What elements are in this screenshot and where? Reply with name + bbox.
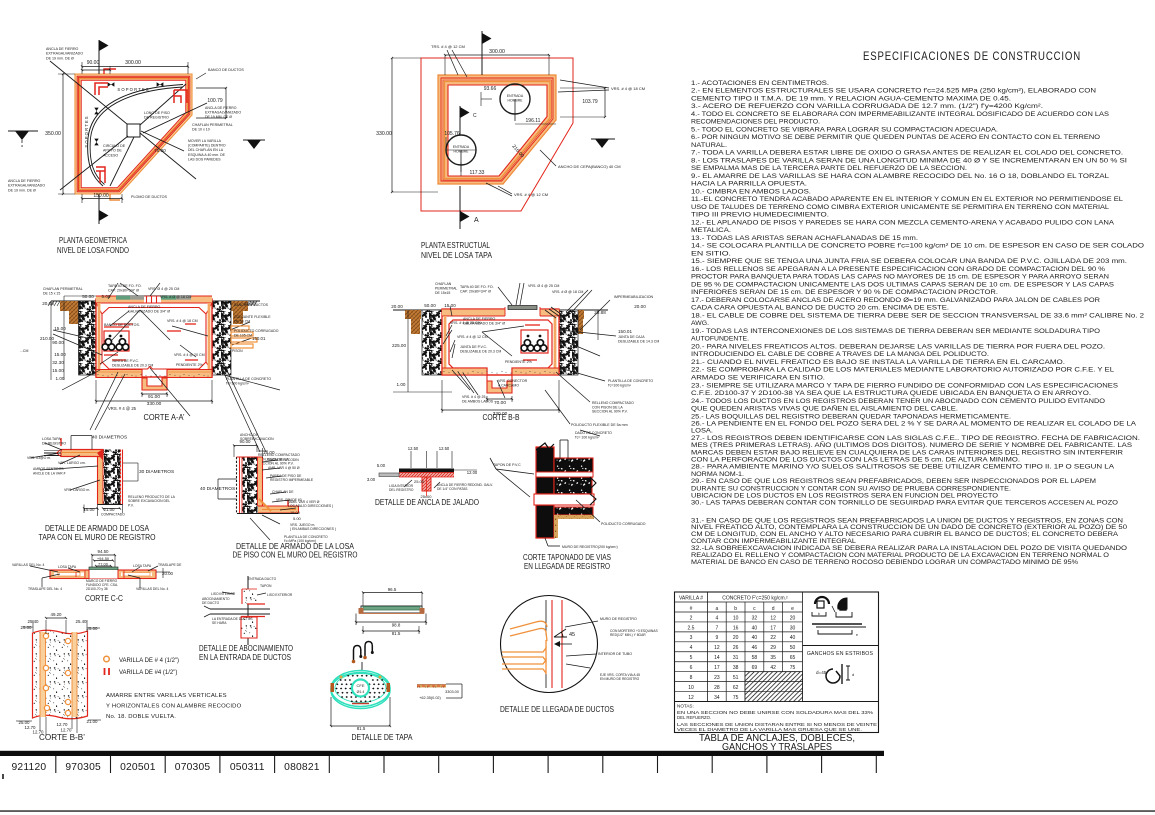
svg-text:(COMPARTE) DENTRO: (COMPARTE) DENTRO: [188, 144, 226, 148]
svg-text:IMPERMEABILIZACION: IMPERMEABILIZACION: [614, 295, 654, 299]
svg-text:DE 50 CM: DE 50 CM: [234, 319, 250, 323]
svg-text:RECOMENDACIONES DEL PRODUCTO.: RECOMENDACIONES DEL PRODUCTO.: [691, 119, 820, 126]
svg-text:DE 15 x 15: DE 15 x 15: [43, 291, 60, 295]
svg-text:20: 20: [733, 635, 739, 641]
svg-text:15.00: 15.00: [444, 303, 456, 308]
svg-text:+94.50: +94.50: [97, 556, 110, 561]
svg-text:15.00: 15.00: [84, 507, 96, 512]
svg-text:SECCION AL 90% P.V.: SECCION AL 90% P.V.: [592, 410, 628, 414]
svg-text:16: 16: [733, 625, 739, 631]
svg-text:5.00: 5.00: [293, 516, 302, 521]
svg-text:93.66: 93.66: [484, 86, 497, 92]
svg-text:LOSA.: LOSA.: [691, 428, 713, 435]
svg-text:LAS DOS PAREDES: LAS DOS PAREDES: [188, 157, 221, 161]
svg-text:APOYO DE: APOYO DE: [103, 149, 122, 153]
svg-text:PROCTOR PARA BANQUETA PARA TOD: PROCTOR PARA BANQUETA PARA TODAS LAS CAP…: [691, 274, 1109, 281]
svg-text:17: 17: [770, 625, 776, 631]
svg-text:DEL REGISTRO: DEL REGISTRO: [389, 488, 414, 492]
svg-text:26: 26: [733, 645, 739, 651]
svg-text:CHAFLAN PERIMETRAL: CHAFLAN PERIMETRAL: [192, 123, 233, 127]
svg-text:32.30: 32.30: [52, 360, 64, 365]
svg-text:SE HARA: SE HARA: [212, 621, 227, 625]
svg-text:58: 58: [752, 655, 758, 661]
svg-text:DE 105 CM: DE 105 CM: [234, 333, 252, 337]
svg-text:#: #: [690, 606, 693, 612]
svg-text:VARILLAS DEL No. 4: VARILLAS DEL No. 4: [12, 563, 45, 567]
svg-text:22.- SE COMPROBARA LA CALIDAD: 22.- SE COMPROBARA LA CALIDAD DE LOS MAT…: [691, 367, 1114, 374]
svg-text:CONTAR CON IMPERMEABILIZANTE I: CONTAR CON IMPERMEABILIZANTE INTEGRAL: [691, 538, 856, 545]
svg-text:25.00: 25.00: [414, 479, 425, 484]
svg-text:f'c=100 kg/cm²: f'c=100 kg/cm²: [226, 381, 250, 385]
svg-text:40 DIAMETROS: 40 DIAMETROS: [92, 435, 127, 441]
svg-text:27.- LOS REGISTROS DEBEN IDENT: 27.- LOS REGISTROS DEBEN IDENTIFICARSE C…: [691, 435, 1140, 442]
svg-text:VARILLA #: VARILLA #: [679, 596, 703, 602]
svg-text:20.- PARA NIVELES FREATICOS AL: 20.- PARA NIVELES FREATICOS ALTOS. DEBER…: [691, 343, 1105, 350]
svg-text:PENDIENTE 2%: PENDIENTE 2%: [176, 363, 204, 367]
svg-text:12.50: 12.50: [439, 446, 450, 451]
svg-text:AUTOFUNDENTE.: AUTOFUNDENTE.: [691, 336, 749, 343]
svg-text:PERIMETRAL: PERIMETRAL: [435, 286, 457, 290]
svg-text:350.00: 350.00: [45, 131, 61, 137]
svg-text:17.- DEBERAN COLOCARSE ANCLAS: 17.- DEBERAN COLOCARSE ANCLAS DE ACERO R…: [691, 297, 1100, 304]
svg-text:8: 8: [690, 675, 693, 681]
svg-text:LOSA TAPA: LOSA TAPA: [133, 564, 152, 568]
svg-text:DE PISO CON EL MURO DEL REGIST: DE PISO CON EL MURO DEL REGISTRO: [233, 551, 358, 560]
svg-text:1.00: 1.00: [56, 376, 65, 381]
svg-text:300.00: 300.00: [489, 49, 505, 55]
svg-text:MURO DE REGISTRO: MURO DE REGISTRO: [562, 545, 598, 549]
svg-text:921120: 921120: [12, 762, 47, 773]
svg-text:1.- ACOTACIONES EN CENTIMETROS: 1.- ACOTACIONES EN CENTIMETROS.: [691, 80, 829, 87]
svg-text:7: 7: [715, 625, 718, 631]
svg-text:CHAFLAN: CHAFLAN: [435, 282, 452, 286]
svg-text:81.5: 81.5: [357, 726, 366, 731]
svg-text:15.00: 15.00: [54, 326, 66, 331]
svg-text:TRASLAPE DE: TRASLAPE DE: [158, 563, 182, 567]
svg-text:QUE QUEDEN ARISTAS VIVAS QUE D: QUE QUEDEN ARISTAS VIVAS QUE DAÑEN EL AI…: [691, 404, 958, 413]
svg-text:14.- SE COLOCARA PLANTILLA DE: 14.- SE COLOCARA PLANTILLA DE CONCRETO P…: [691, 243, 1144, 250]
svg-text:24.- TODOS LOS DUCTOS EN LOS R: 24.- TODOS LOS DUCTOS EN LOS REGISTROS D…: [691, 398, 1105, 405]
svg-text:75: 75: [733, 695, 739, 701]
svg-text:VRS. # 4 @ 18 CM: VRS. # 4 @ 18 CM: [611, 86, 645, 91]
svg-text:INFERIORES SERAN DE 15 cm. DE: INFERIORES SERAN DE 15 cm. DE ESPESOR Y …: [691, 289, 998, 296]
svg-text:51: 51: [733, 675, 739, 681]
svg-text:VARILLAS DEL No. 4: VARILLAS DEL No. 4: [136, 587, 169, 591]
svg-text:94.50: 94.50: [98, 549, 110, 554]
svg-text:EN SITIO.: EN SITIO.: [691, 250, 731, 257]
svg-text:+62.35(0.02): +62.35(0.02): [419, 696, 441, 700]
svg-text:050311: 050311: [230, 762, 265, 773]
svg-text:NIVEL DE LOSA TAPA: NIVEL DE LOSA TAPA: [421, 251, 493, 260]
svg-text:ESQUINA A 40 mm. DE: ESQUINA A 40 mm. DE: [188, 153, 226, 157]
svg-text:VRS. Ø 4 @ 25 CM: VRS. Ø 4 @ 25 CM: [528, 284, 559, 288]
svg-text:BANCO DE DUCTOS: BANCO DE DUCTOS: [208, 68, 244, 72]
svg-text:90.00: 90.00: [87, 60, 100, 66]
svg-text:23: 23: [714, 675, 720, 681]
svg-text:SOBREEXCAVACION: SOBREEXCAVACION: [240, 437, 274, 441]
svg-text:20: 20: [790, 615, 796, 621]
svg-text:91.00: 91.00: [148, 394, 160, 400]
svg-text:a: a: [21, 144, 23, 148]
svg-text:LISO EXTERIOR: LISO EXTERIOR: [267, 593, 293, 597]
svg-text:EN MURO DE REGISTRO: EN MURO DE REGISTRO: [600, 677, 640, 681]
svg-text:...CM: ...CM: [20, 349, 28, 353]
svg-text:VRS. # 4 @ 18 CM: VRS. # 4 @ 18 CM: [167, 319, 198, 323]
svg-text:2.5: 2.5: [688, 625, 695, 631]
svg-text:NIVEL FREATICO ALTO, CONTEMPL: NIVEL FREATICO ALTO, CONTEMPLARA LA CONS…: [691, 524, 1127, 531]
svg-text:40: 40: [790, 635, 796, 641]
svg-text:40: 40: [752, 635, 758, 641]
svg-text:BANCO DE DUCTOS: BANCO DE DUCTOS: [234, 303, 269, 307]
svg-text:CEMENTO TIPO II T.M.A. DE 19 m: CEMENTO TIPO II T.M.A. DE 19 mm. Y RELAC…: [691, 96, 1011, 103]
svg-text:3303.00: 3303.00: [445, 690, 459, 694]
svg-text:ENTRADA: ENTRADA: [453, 145, 470, 149]
svg-text:f'c=100 kg/cm²: f'c=100 kg/cm²: [608, 383, 632, 387]
svg-text:S O P O R T E S: S O P O R T E S: [117, 87, 148, 92]
svg-text:70.00: 70.00: [494, 400, 506, 406]
svg-text:INTERIOR DE TUBO: INTERIOR DE TUBO: [598, 652, 632, 656]
svg-text:CAP. 20x80=3/4" Ø: CAP. 20x80=3/4" Ø: [108, 288, 139, 292]
svg-text:7.- TODA LA VARILLA DEBERA EST: 7.- TODA LA VARILLA DEBERA ESTAR LIBRE D…: [691, 150, 1123, 157]
svg-text:NORMA NOM-1.: NORMA NOM-1.: [691, 471, 744, 478]
svg-text:75: 75: [790, 665, 796, 671]
svg-text:MARCAS DEBEN ESTAR BAJO RELIEV: MARCAS DEBEN ESTAR BAJO RELIEVE EN CUALQ…: [691, 449, 1123, 456]
svg-text:10.- CIMBRA EN AMBOS LADOS.: 10.- CIMBRA EN AMBOS LADOS.: [691, 188, 811, 195]
svg-text:RED(1/2" MIN.) Y 8GAR: RED(1/2" MIN.) Y 8GAR: [610, 633, 646, 637]
svg-text:S O P O R T E S: S O P O R T E S: [84, 116, 89, 147]
svg-text:21.- CUANDO EL NIVEL FREATICO: 21.- CUANDO EL NIVEL FREATICO ES BAJO SE…: [691, 359, 1065, 366]
svg-text:300.00: 300.00: [125, 60, 141, 66]
svg-text:EN LLEGADA DE REGISTRO: EN LLEGADA DE REGISTRO: [524, 562, 610, 571]
svg-text:C: C: [473, 113, 477, 119]
svg-text:CONCRETO F'c=250 kg/cm.²: CONCRETO F'c=250 kg/cm.²: [722, 596, 788, 602]
svg-text:LOSA TAPA: LOSA TAPA: [58, 565, 77, 569]
svg-text:5.00: 5.00: [377, 463, 386, 468]
svg-text:PLANTA ESTRUCTUAL: PLANTA ESTRUCTUAL: [421, 241, 490, 250]
svg-text:GANCHOS EN ESTRIBOS: GANCHOS EN ESTRIBOS: [807, 651, 874, 657]
svg-text:AMARRE ENTRE VARILLAS VERTICAL: AMARRE ENTRE VARILLAS VERTICALES: [106, 693, 227, 699]
svg-text:21.00: 21.00: [104, 507, 116, 512]
svg-text:30 DIAMETROS: 30 DIAMETROS: [139, 469, 174, 475]
svg-text:DEL REFUERZO.: DEL REFUERZO.: [677, 715, 711, 720]
svg-text:CFE: CFE: [357, 683, 365, 688]
svg-text:9.- EL AMARRE DE LAS VARILLAS: 9.- EL AMARRE DE LAS VARILLAS SE HARA CO…: [691, 173, 1109, 180]
svg-text:AMB. VAR 4 @ 50 Ø: AMB. VAR 4 @ 50 Ø: [268, 466, 300, 470]
svg-text:EN LA ENTRADA DE DUCTOS: EN LA ENTRADA DE DUCTOS: [199, 653, 291, 662]
svg-text:NOTAS:: NOTAS:: [677, 704, 694, 709]
svg-text:020501: 020501: [120, 762, 156, 773]
svg-text:PISON: PISON: [232, 349, 243, 353]
svg-text:12.00: 12.00: [467, 470, 478, 475]
svg-text:ESPECIFICACIONES DE CONSTRUCCI: ESPECIFICACIONES DE CONSTRUCCION: [863, 51, 1081, 63]
svg-text:12.50: 12.50: [408, 446, 419, 451]
svg-text:2.- EN ELEMENTOS ESTRUCTURALES: 2.- EN ELEMENTOS ESTRUCTURALES SE USARA …: [691, 88, 1096, 95]
svg-text:20.00: 20.00: [42, 301, 54, 306]
svg-text:ARMADO SE VERIFICARA EN SITIO.: ARMADO SE VERIFICARA EN SITIO.: [691, 375, 825, 382]
svg-text:50: 50: [790, 645, 796, 651]
svg-text:VRS. # 4 @ 25 CM: VRS. # 4 @ 25 CM: [450, 321, 481, 325]
svg-text:100.79: 100.79: [207, 98, 223, 104]
svg-text:CIRCULO DE: CIRCULO DE: [103, 144, 126, 148]
svg-text:DETALLE DE ANCLA DE JALADO: DETALLE DE ANCLA DE JALADO: [375, 498, 479, 507]
svg-text:13.- TODAS LAS ARISTAS SERAN A: 13.- TODAS LAS ARISTAS SERAN ACHAFLANADA…: [691, 235, 918, 242]
svg-text:ANCLA DE FIERRO: ANCLA DE FIERRO: [205, 106, 237, 110]
svg-text:TRS. # 4 @ 12 CM: TRS. # 4 @ 12 CM: [431, 44, 465, 49]
svg-text:C.F.E. 2D100-37 Y 2D100-38 YA: C.F.E. 2D100-37 Y 2D100-38 YA SEA QUE LA…: [691, 390, 1091, 397]
svg-text:TAPON DE P.V.C: TAPON DE P.V.C: [493, 463, 521, 467]
svg-text:POLIDUCTO FLEXIBLE DE 5a mm: POLIDUCTO FLEXIBLE DE 5a mm: [571, 423, 628, 427]
svg-text:81.5: 81.5: [392, 631, 401, 636]
svg-text:MOVER LA VARILLA: MOVER LA VARILLA: [188, 139, 222, 143]
svg-text:CON LA PERFORACION DE LOS DUCT: CON LA PERFORACION DE LOS DUCTOS CON LAS…: [691, 457, 1020, 464]
svg-text:A CARCAMO: A CARCAMO: [498, 383, 519, 387]
svg-text:3: 3: [690, 635, 693, 641]
svg-text:MES (TRES PRIMERAS LETRAS). AÑ: MES (TRES PRIMERAS LETRAS). AÑO (ULTIMOS…: [691, 440, 1133, 449]
svg-text:DE 95 % DE COMPACTACION UNICAM: DE 95 % DE COMPACTACION UNICAMENTE LAS D…: [691, 281, 1115, 288]
svg-text:40: 40: [752, 625, 758, 631]
svg-text:HACIA LA PARRILLA OPUESTA.: HACIA LA PARRILLA OPUESTA.: [691, 181, 807, 188]
svg-text:e: e: [856, 633, 858, 637]
svg-text:5: 5: [690, 655, 693, 661]
svg-text:VRS. # 4 @ 25: VRS. # 4 @ 25: [108, 406, 137, 411]
svg-text:25.00: 25.00: [21, 625, 33, 630]
svg-text:UBICACION DE LOS DUCTOS EN LOS: UBICACION DE LOS DUCTOS EN LOS REGISTROS…: [691, 493, 998, 500]
svg-text:DESLIZABLE DE 14.3 CM: DESLIZABLE DE 14.3 CM: [618, 339, 659, 343]
svg-text:ANCLA DE FIERRO: ANCLA DE FIERRO: [128, 305, 161, 309]
svg-text:LONG DE PISO: LONG DE PISO: [144, 111, 170, 115]
svg-text:080821: 080821: [284, 762, 320, 773]
svg-text:12.70: 12.70: [57, 722, 69, 727]
svg-text:5.00: 5.00: [102, 294, 111, 299]
svg-text:8.- LOS TRASLAPES DE VARILLA S: 8.- LOS TRASLAPES DE VARILLA SERAN DE UN…: [691, 157, 1127, 164]
svg-text:75.00: 75.00: [154, 148, 166, 153]
svg-text:CHAFLAN DE: CHAFLAN DE: [272, 490, 294, 494]
svg-text:4: 4: [690, 645, 693, 651]
svg-text:18.- EL CABLE DE COBRE DEL SIS: 18.- EL CABLE DE COBRE DEL SISTEMA DE TI…: [691, 312, 1144, 319]
svg-text:49.20: 49.20: [51, 612, 63, 617]
svg-text:CAP. 20x80=3/4" Ø: CAP. 20x80=3/4" Ø: [460, 289, 491, 293]
svg-text:TAPA 40 DE FO. FO.: TAPA 40 DE FO. FO.: [460, 285, 494, 289]
svg-text:11.-EL CONCRETO TENDRA ACABADO: 11.-EL CONCRETO TENDRA ACABADO APARENTE …: [691, 196, 1123, 203]
svg-text:3.- ACERO DE REFUERZO CON VARI: 3.- ACERO DE REFUERZO CON VARILLA CORRUG…: [691, 103, 1043, 110]
svg-text:MATERIAL DE BANCO EN CASO DE T: MATERIAL DE BANCO EN CASO DE TERRENO ROC…: [691, 559, 1078, 566]
svg-text:P.V.: P.V.: [128, 503, 134, 507]
svg-text:POLIDUCTO CORRUGADO: POLIDUCTO CORRUGADO: [601, 522, 646, 526]
svg-text:330.00: 330.00: [147, 401, 162, 407]
svg-text:50.00: 50.00: [424, 303, 436, 308]
svg-text:DE 19 mm. DE Ø: DE 19 mm. DE Ø: [8, 188, 36, 192]
svg-text:38: 38: [733, 665, 739, 671]
svg-text:ACCESO: ACCESO: [103, 153, 118, 157]
svg-text:20.00: 20.00: [391, 304, 403, 309]
svg-text:ENTRADA DUCTO: ENTRADA DUCTO: [248, 577, 277, 581]
svg-text:DESLIZABLE DE 20.3 CM: DESLIZABLE DE 20.3 CM: [112, 363, 153, 367]
svg-text:VRS. LARGO m.: VRS. LARGO m.: [64, 488, 90, 492]
svg-text:25.- LAS BOQUILLAS DEL REGISTR: 25.- LAS BOQUILLAS DEL REGISTRO DEBERAN …: [691, 413, 1011, 420]
svg-text:VRS. Ø 4 @ 25 CM: VRS. Ø 4 @ 25 CM: [148, 287, 179, 291]
svg-text:USO DE TALUDES DE TERRENO COMO: USO DE TALUDES DE TERRENO COMO CIMBRA EX…: [691, 204, 1109, 211]
svg-text:VRS. # 4 @ 12 CM: VRS. # 4 @ 12 CM: [457, 335, 488, 339]
svg-text:SECCION AL 90% P.V.: SECCION AL 90% P.V.: [258, 462, 294, 466]
svg-text:12: 12: [688, 695, 694, 701]
svg-text:NIVEL DE LOSA FONDO: NIVEL DE LOSA FONDO: [57, 246, 129, 255]
svg-text:19.- TODAS LAS INTERCONEXIONES: 19.- TODAS LAS INTERCONEXIONES DE LOS SI…: [691, 328, 1100, 335]
svg-text:e: e: [791, 606, 794, 612]
svg-text:TAPON: TAPON: [260, 584, 272, 588]
svg-text:6: 6: [690, 665, 693, 671]
svg-text:LISO INTERIOR: LISO INTERIOR: [211, 592, 236, 596]
svg-text:DETALLE DE ABOCINAMIENTO: DETALLE DE ABOCINAMIENTO: [199, 644, 293, 653]
svg-text:150.00: 150.00: [93, 193, 109, 199]
svg-text:b: b: [734, 606, 737, 612]
svg-text:d: d: [852, 672, 854, 677]
svg-text:AWG.: AWG.: [691, 320, 709, 327]
svg-text:MURO DE REGISTRO: MURO DE REGISTRO: [600, 617, 637, 621]
svg-text:EXTRAGALVANIZADO: EXTRAGALVANIZADO: [46, 52, 83, 56]
svg-text:42: 42: [770, 665, 776, 671]
svg-text:34: 34: [714, 695, 720, 701]
svg-text:4: 4: [715, 615, 718, 621]
svg-text:23.- SIEMPRE SE UTILIZARA MARC: 23.- SIEMPRE SE UTILIZARA MARCO Y TAPA D…: [691, 382, 1119, 389]
svg-text:ANCLA DE FIERRO: ANCLA DE FIERRO: [8, 179, 41, 183]
svg-text:DURANTE SU CONSTRUCCION Y CONT: DURANTE SU CONSTRUCCION Y CONTAR CON SU …: [691, 485, 1011, 492]
svg-text:15.00: 15.00: [290, 510, 301, 515]
svg-text:CORTE C-C: CORTE C-C: [85, 594, 123, 603]
svg-text:f'c= 100 kg/cm²: f'c= 100 kg/cm²: [575, 435, 600, 439]
svg-text:10: 10: [688, 685, 694, 691]
svg-text:970305: 970305: [65, 762, 101, 773]
svg-text:CADA CARA OPUESTA AL BANCO DE: CADA CARA OPUESTA AL BANCO DE DUCTO 20 c…: [691, 305, 949, 312]
svg-text:VARILLA DE #4 (1/2"): VARILLA DE #4 (1/2"): [119, 670, 177, 676]
svg-text:15.00: 15.00: [54, 352, 66, 357]
svg-text:DE 10 x 10: DE 10 x 10: [192, 128, 210, 132]
svg-text:62: 62: [733, 685, 739, 691]
svg-text:SE EMPALMA MAS DE LA TERCERA P: SE EMPALMA MAS DE LA TERCERA PARTE DEL R…: [691, 165, 967, 172]
svg-text:32: 32: [752, 615, 758, 621]
svg-text:DE REGISTRO: DE REGISTRO: [144, 116, 169, 120]
svg-text:DETALLE DE TAPA: DETALLE DE TAPA: [352, 733, 414, 742]
svg-text:4.- TODO EL CONCRETO SE ELABOR: 4.- TODO EL CONCRETO SE ELABORARA CON IM…: [691, 111, 1110, 118]
svg-text:EXTRAGALVANIZADO: EXTRAGALVANIZADO: [8, 184, 45, 188]
svg-text:25.40: 25.40: [76, 619, 88, 624]
svg-text:15.- SIEMPRE QUE SE TENGA UNA: 15.- SIEMPRE QUE SE TENGA UNA JUNTA FRIA…: [691, 258, 1127, 265]
svg-text:3.00: 3.00: [367, 477, 376, 482]
svg-text:150.01: 150.01: [618, 329, 632, 334]
svg-text:BANCO DE DUCTOS.: BANCO DE DUCTOS.: [104, 323, 140, 327]
svg-text:35: 35: [770, 655, 776, 661]
svg-text:EXTRAGALVANIZADO: EXTRAGALVANIZADO: [205, 111, 241, 115]
svg-text:15.00: 15.00: [52, 368, 64, 373]
svg-text:96.5: 96.5: [388, 587, 397, 592]
svg-text:31: 31: [733, 655, 739, 661]
svg-text:SOBRE EXCAVACION DEL: SOBRE EXCAVACION DEL: [128, 499, 170, 503]
svg-text:16.- LOS RELLENOS SE APEGARAN: 16.- LOS RELLENOS SE APEGARAN A LA PRESE…: [691, 266, 1105, 273]
svg-text:40 DIAMETROS: 40 DIAMETROS: [200, 486, 235, 492]
svg-text:VRS. #3@O m.: VRS. #3@O m.: [27, 456, 51, 460]
svg-text:PLOMO DE DUCTOS: PLOMO DE DUCTOS: [131, 195, 168, 199]
svg-text:50.00: 50.00: [82, 294, 94, 299]
svg-text:DETALLE DE ARMADO DE LOSA: DETALLE DE ARMADO DE LOSA: [45, 524, 150, 533]
svg-text:TRASLAPE DEL No. 4: TRASLAPE DEL No. 4: [28, 587, 62, 591]
svg-text:28.- PARA AMBIENTE MARINO Y/O: 28.- PARA AMBIENTE MARINO Y/O SUELOS SAL…: [691, 464, 1115, 471]
svg-text:Y HORIZONTALES CON ALAMBRE REC: Y HORIZONTALES CON ALAMBRE RECOCIDO: [106, 704, 242, 710]
svg-text:VECES EL DIAMETRO DE LA VARILL: VECES EL DIAMETRO DE LA VARILLA MAS GRUE…: [677, 727, 862, 732]
svg-text:6.- POR NINGUN MOTIVO SE DEBE: 6.- POR NINGUN MOTIVO SE DEBE PERMITIR Q…: [691, 134, 1100, 141]
svg-text:DESLIZABLE DE 20.3 CM: DESLIZABLE DE 20.3 CM: [460, 349, 501, 353]
svg-text:2: 2: [690, 615, 693, 621]
svg-text:105.76: 105.76: [444, 131, 460, 137]
svg-text:12: 12: [770, 615, 776, 621]
svg-text:20.88: 20.88: [594, 310, 606, 315]
svg-text:330.00: 330.00: [376, 131, 392, 137]
svg-text:98.8: 98.8: [392, 623, 401, 628]
svg-text:12: 12: [714, 645, 720, 651]
svg-text:070305: 070305: [175, 762, 211, 773]
svg-text:VRS. # 4 @ 12 CM: VRS. # 4 @ 12 CM: [514, 192, 548, 197]
svg-text:No. 18. DOBLE VUELTA.: No. 18. DOBLE VUELTA.: [106, 714, 176, 720]
svg-text:DE AMBOS LADOS: DE AMBOS LADOS: [462, 399, 494, 403]
svg-text:VAR. LARGO cm.: VAR. LARGO cm.: [58, 461, 86, 465]
svg-text:12.- EL APLANADO DE PISOS Y P: 12.- EL APLANADO DE PISOS Y PAREDES SE H…: [691, 219, 1115, 226]
svg-text:COMPACTADO: COMPACTADO: [101, 513, 125, 517]
svg-text:1.00: 1.00: [397, 382, 406, 387]
svg-text:DE DUCTO: DE DUCTO: [202, 601, 220, 605]
svg-text:DE 15x15: DE 15x15: [435, 291, 450, 295]
svg-text:VRS. # Ø @ 18 CM: VRS. # Ø @ 18 CM: [160, 295, 191, 299]
svg-text:(200 kg/cm²): (200 kg/cm²): [598, 545, 618, 549]
svg-text:90.00: 90.00: [52, 340, 64, 345]
svg-text:150.01: 150.01: [252, 336, 266, 341]
svg-text:a: a: [715, 606, 718, 612]
svg-text:VRS. # 4 @ 20 CM: VRS. # 4 @ 20 CM: [174, 353, 205, 357]
svg-text:9: 9: [715, 635, 718, 641]
svg-text:d=45: d=45: [816, 670, 827, 675]
svg-text:( EN AMBAS DIRECCIONES ): ( EN AMBAS DIRECCIONES ): [290, 527, 336, 531]
svg-text:ANCLA DE FIERRO: ANCLA DE FIERRO: [46, 47, 79, 51]
svg-text:TAPA 40 DE FO. FO.: TAPA 40 DE FO. FO.: [108, 284, 142, 288]
svg-text:ANCLE DE LA VAR #: ANCLE DE LA VAR #: [33, 471, 65, 475]
svg-text:30: 30: [790, 625, 796, 631]
svg-text:DETALLE DE LLEGADA DE DUCTOS: DETALLE DE LLEGADA DE DUCTOS: [500, 705, 614, 714]
svg-text:ENTRADA: ENTRADA: [507, 94, 524, 98]
svg-text:30.- LAS TAPAS DEBERAN CONTAR: 30.- LAS TAPAS DEBERAN CONTAR CON TORNIL…: [691, 500, 1118, 507]
svg-text:ANCHO DE CEPA(BANCO) 40 CM: ANCHO DE CEPA(BANCO) 40 CM: [558, 164, 621, 169]
svg-text:GALVANIZADO DE 3/4" Ø: GALVANIZADO DE 3/4" Ø: [128, 309, 170, 313]
svg-text:DE 19 mm. DE Ø: DE 19 mm. DE Ø: [46, 56, 74, 60]
svg-text:d: d: [772, 606, 775, 612]
svg-text:VARILLA DE # 4 (1/2"): VARILLA DE # 4 (1/2"): [119, 658, 179, 664]
svg-text:29.- EN CASO DE QUE LOS REGIST: 29.- EN CASO DE QUE LOS REGISTROS SEAN P…: [691, 478, 1096, 485]
svg-text:CORTE B-B’: CORTE B-B’: [39, 732, 85, 742]
svg-text:26.- LA PENDIENTE EN EL FONDO: 26.- LA PENDIENTE EN EL FONDO DEL POZO S…: [691, 421, 1137, 428]
svg-text:INTRODUCIENDO EL CABLE DE COBR: INTRODUCIENDO EL CABLE DE COBRE A TRAVES…: [691, 351, 989, 358]
svg-text:DEL CHAFLAN EN LA: DEL CHAFLAN EN LA: [188, 148, 224, 152]
svg-text:JUNTA DE RECODIN: JUNTA DE RECODIN: [266, 458, 299, 462]
svg-text:CHAFLAN PERIMETRAL: CHAFLAN PERIMETRAL: [43, 287, 83, 291]
svg-text:PLANTA GEOMETRICA: PLANTA GEOMETRICA: [59, 236, 128, 245]
svg-text:103.79: 103.79: [582, 99, 598, 105]
svg-text:LOS ABAJO DIRECCIONES ): LOS ABAJO DIRECCIONES ): [288, 504, 333, 508]
svg-text:46: 46: [752, 645, 758, 651]
svg-text:b: b: [818, 612, 820, 616]
svg-text:65: 65: [790, 655, 796, 661]
svg-text:10: 10: [733, 615, 739, 621]
svg-text:117.33: 117.33: [470, 170, 485, 176]
svg-text:77.00: 77.00: [98, 562, 109, 567]
svg-text:DE 19 MM. DE Ø: DE 19 MM. DE Ø: [205, 115, 232, 119]
svg-text:45: 45: [569, 632, 575, 638]
svg-text:28: 28: [714, 685, 720, 691]
